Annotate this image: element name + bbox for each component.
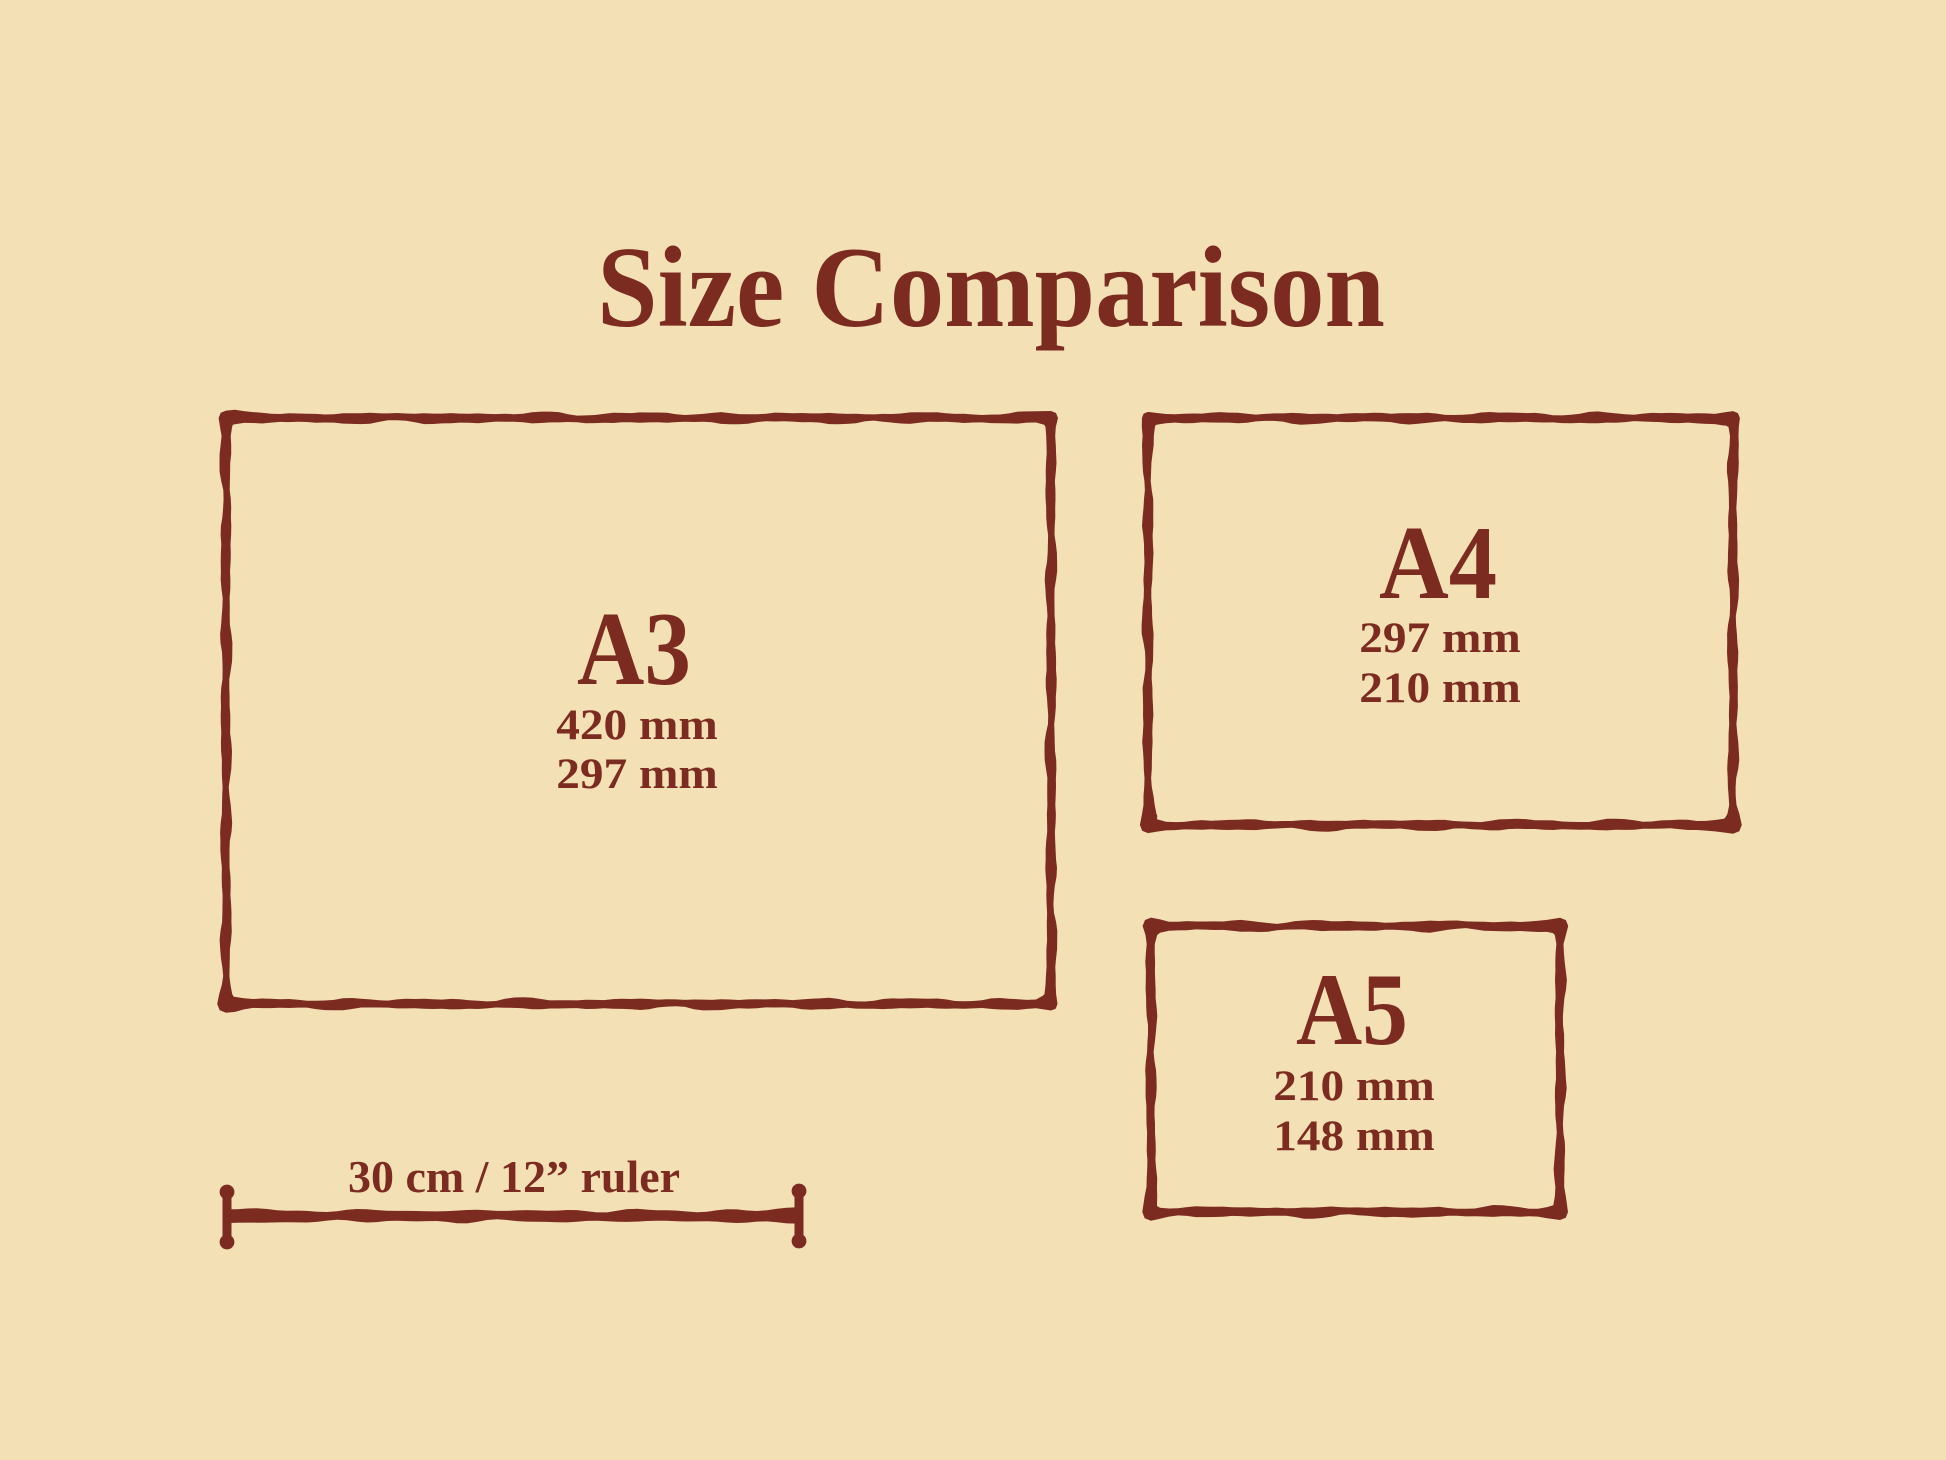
svg-text:420 mm: 420 mm — [556, 701, 718, 749]
svg-text:A3: A3 — [577, 592, 691, 707]
svg-text:30 cm / 12” ruler: 30 cm / 12” ruler — [348, 1151, 680, 1202]
svg-text:297 mm: 297 mm — [1359, 614, 1521, 662]
svg-text:210 mm: 210 mm — [1359, 664, 1521, 712]
svg-text:210 mm: 210 mm — [1273, 1062, 1435, 1110]
svg-text:148 mm: 148 mm — [1273, 1112, 1435, 1160]
svg-text:Size Comparison: Size Comparison — [597, 224, 1385, 352]
svg-text:A5: A5 — [1296, 953, 1408, 1067]
svg-text:297 mm: 297 mm — [556, 750, 718, 798]
svg-text:A4: A4 — [1379, 505, 1497, 621]
